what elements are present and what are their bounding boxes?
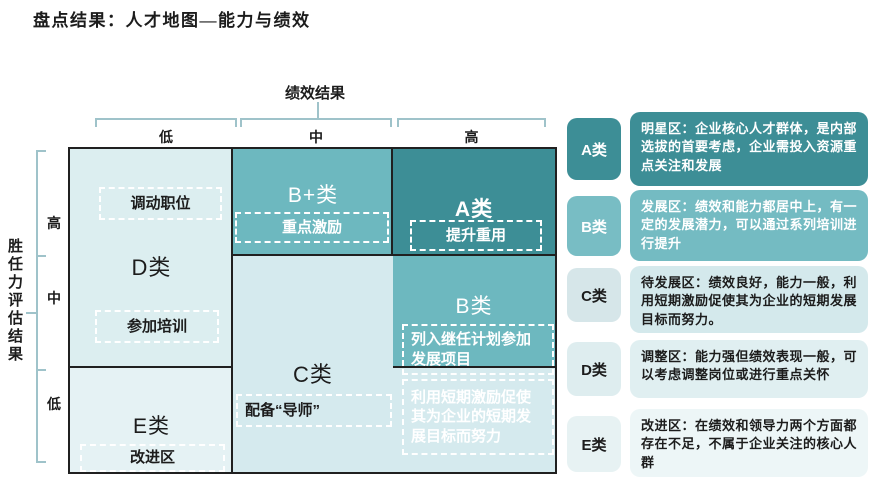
legend-badge-e: E类	[567, 416, 621, 472]
x-bracket-low	[95, 118, 237, 127]
action-box-training: 参加培训	[95, 310, 219, 343]
x-bracket-high	[397, 118, 546, 127]
cell-label-d: D类	[70, 250, 233, 282]
y-tick-low: 低	[44, 394, 64, 414]
legend-desc-e: 改进区：在绩效和领导力两个方面都存在不足，不属于企业关注的核心人群	[630, 409, 868, 477]
legend-badge-c: C类	[567, 268, 621, 322]
action-box-incentive: 重点激励	[235, 212, 389, 243]
cell-label-e: E类	[70, 410, 233, 440]
x-tick-low: 低	[95, 127, 237, 147]
x-axis-title: 绩效结果	[240, 82, 390, 103]
legend-badge-d: D类	[567, 342, 621, 396]
cell-label-c: C类	[233, 357, 393, 389]
page-title: 盘点结果：人才地图—能力与绩效	[33, 6, 311, 31]
legend-badge-a: A类	[567, 118, 621, 180]
action-box-promote: 提升重用	[410, 220, 542, 251]
legend-desc-b: 发展区：绩效和能力都居中上，有一定的发展潜力，可以通过系列培训进行提升	[630, 190, 868, 261]
slide: 盘点结果：人才地图—能力与绩效 绩效结果 低 中 高 胜任力评估结果 高 中 低…	[0, 0, 873, 480]
y-bracket-mid	[36, 255, 46, 371]
legend-desc-d: 调整区：能力强但绩效表现一般，可以考虑调整岗位或进行重点关怀	[630, 340, 868, 398]
action-box-improve: 改进区	[80, 444, 225, 472]
cell-label-a: A类	[393, 193, 555, 223]
action-box-succession: 列入继任计划参加发展项目	[402, 324, 554, 375]
legend-desc-a: 明星区：企业核心人才群体，是内部选拔的首要考虑，企业需投入资源重点关注和发展	[630, 112, 868, 186]
talent-matrix: D类 E类 B+类 A类 B类 C类 调动职位 参加培训 改进区 重点激励 提升…	[68, 147, 557, 474]
cell-label-b-plus: B+类	[233, 179, 393, 209]
y-tick-high: 高	[44, 213, 64, 233]
y-bracket-high	[36, 150, 46, 257]
cell-label-b: B类	[393, 290, 555, 320]
y-axis-title: 胜任力评估结果	[4, 238, 24, 388]
action-box-short-term-incentive: 利用短期激励促使其为企业的短期发展目标而努力	[402, 379, 554, 455]
y-axis-connector	[26, 312, 36, 314]
x-axis-connector	[317, 102, 319, 118]
action-box-mentor: 配备“导师”	[236, 394, 392, 427]
y-tick-mid: 中	[44, 288, 64, 308]
x-tick-mid: 中	[240, 127, 392, 147]
legend-badge-b: B类	[567, 196, 621, 256]
x-tick-high: 高	[397, 127, 546, 147]
action-box-relocate: 调动职位	[99, 187, 222, 220]
legend-desc-c: 待发展区：绩效良好，能力一般，利用短期激励促使其为企业的短期发展目标而努力。	[630, 266, 868, 333]
y-bracket-low	[36, 369, 46, 463]
x-bracket-mid	[240, 118, 392, 127]
